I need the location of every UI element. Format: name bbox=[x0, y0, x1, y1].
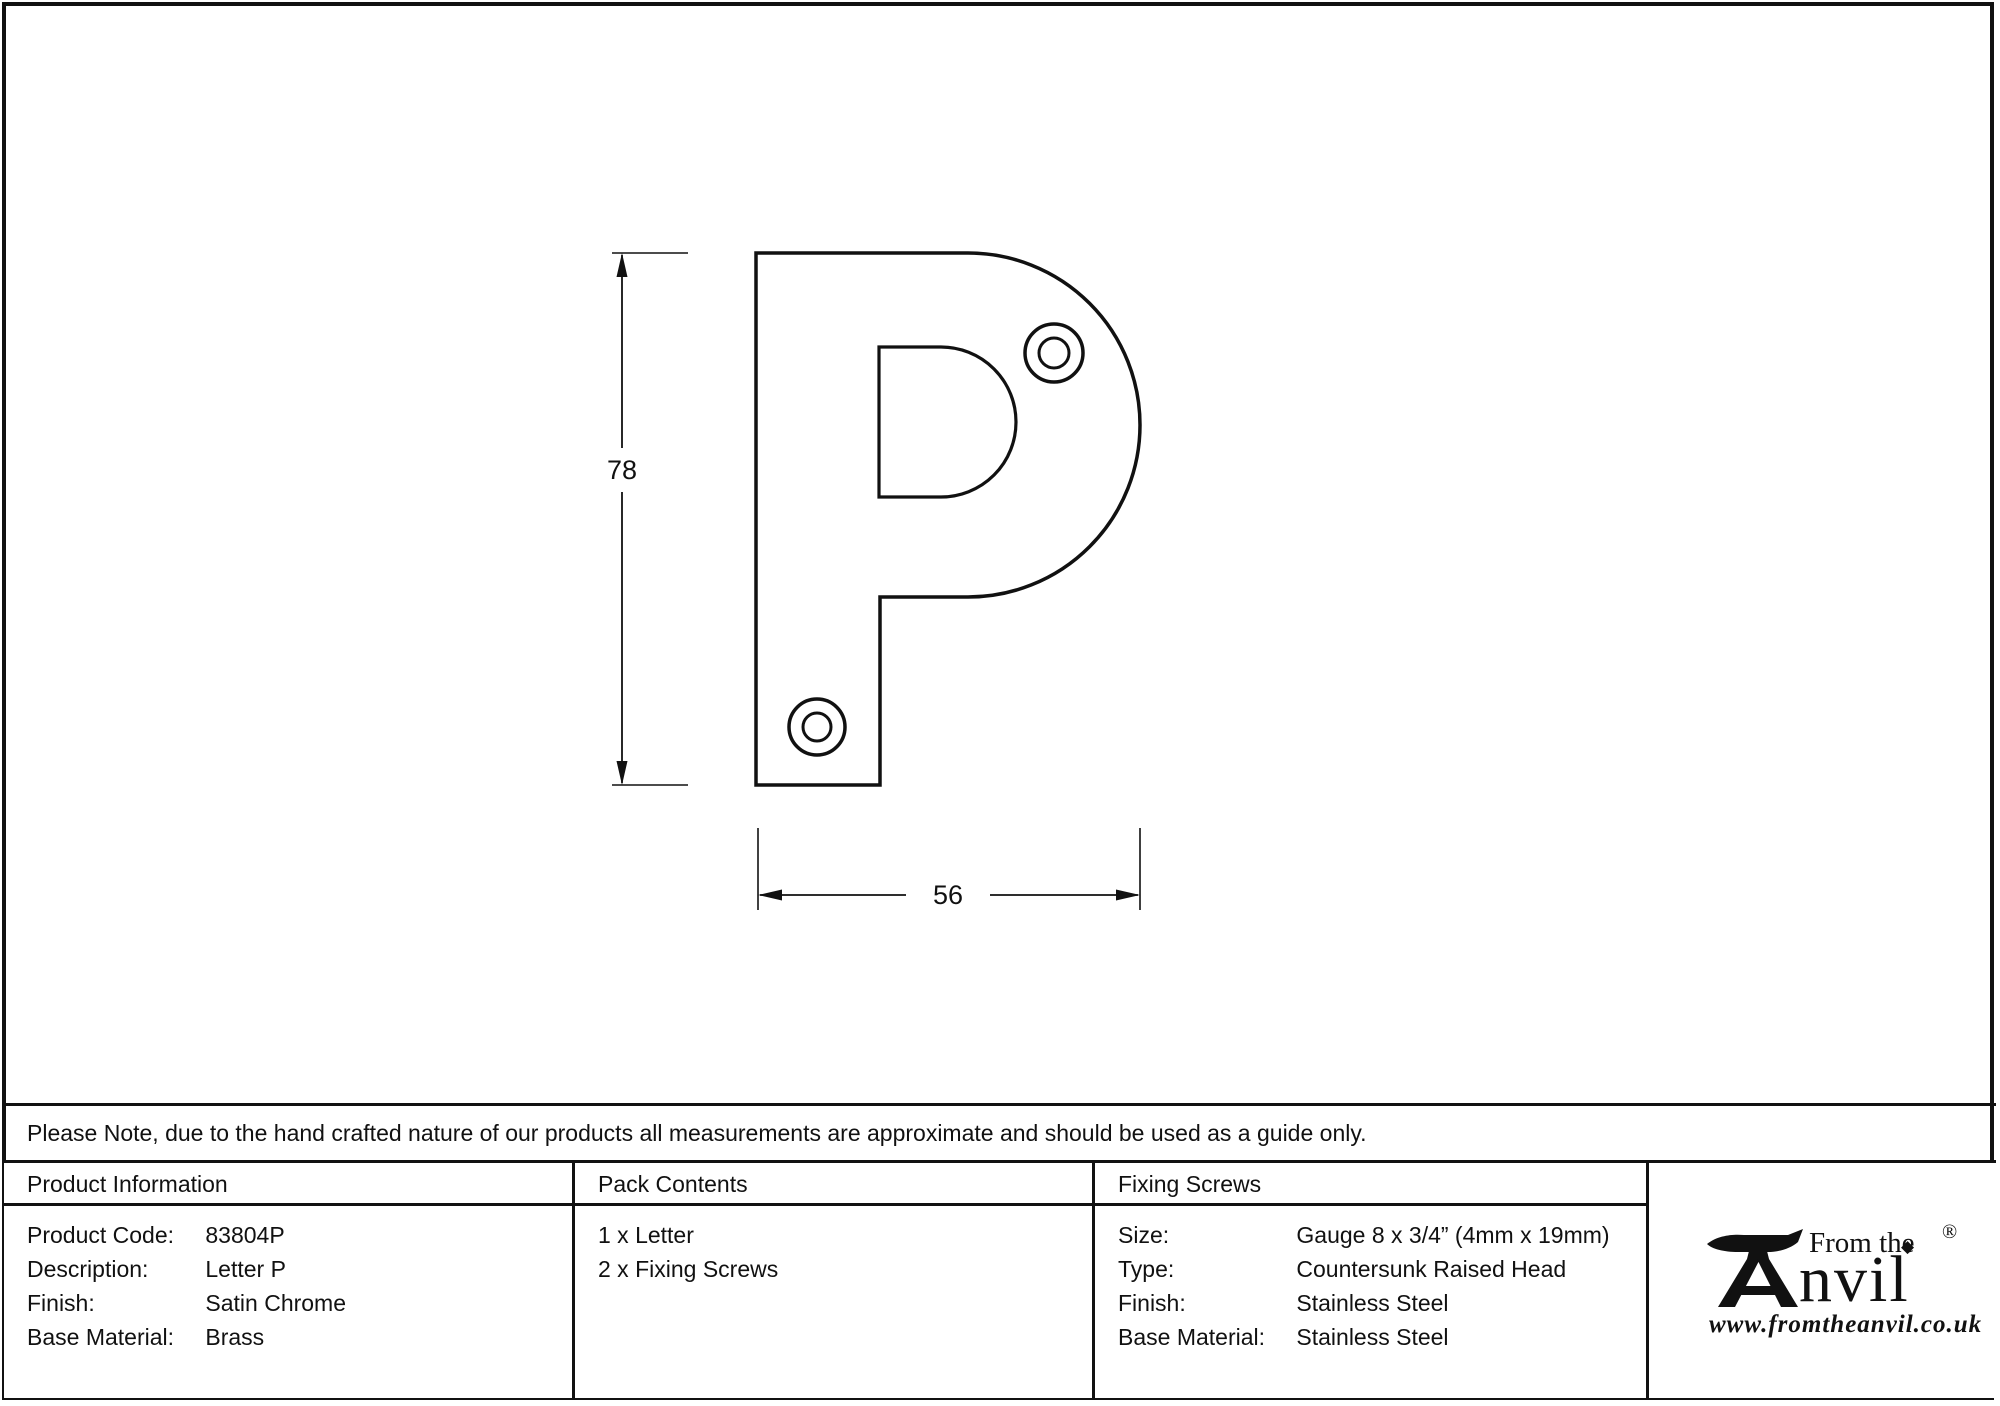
row-label: Finish: bbox=[27, 1286, 199, 1320]
pack-contents-header: Pack Contents bbox=[575, 1163, 1092, 1206]
row-value: Gauge 8 x 3/4” (4mm x 19mm) bbox=[1296, 1222, 1609, 1248]
row-value: Stainless Steel bbox=[1296, 1324, 1448, 1350]
row-value: Letter P bbox=[205, 1256, 286, 1282]
row-value: Brass bbox=[205, 1324, 264, 1350]
technical-drawing: 78 56 bbox=[0, 0, 2000, 1103]
note-text: Please Note, due to the hand crafted nat… bbox=[27, 1120, 1367, 1146]
table-row: Base Material: Stainless Steel bbox=[1118, 1320, 1646, 1354]
table-row: Size: Gauge 8 x 3/4” (4mm x 19mm) bbox=[1118, 1218, 1646, 1252]
list-item: 1 x Letter bbox=[598, 1218, 1092, 1252]
table-row: Type: Countersunk Raised Head bbox=[1118, 1252, 1646, 1286]
row-value: Stainless Steel bbox=[1296, 1290, 1448, 1316]
table-row: Finish: Stainless Steel bbox=[1118, 1286, 1646, 1320]
logo-website: www.fromtheanvil.co.uk bbox=[1709, 1311, 1982, 1339]
table-row: Product Code: 83804P bbox=[27, 1218, 572, 1252]
table-row: Base Material: Brass bbox=[27, 1320, 572, 1354]
pack-contents-column: Pack Contents 1 x Letter 2 x Fixing Scre… bbox=[572, 1163, 1092, 1398]
letter-p-counter bbox=[879, 347, 1016, 497]
width-dimension-label: 56 bbox=[933, 880, 963, 910]
row-value: Satin Chrome bbox=[205, 1290, 346, 1316]
table-row: Description: Letter P bbox=[27, 1252, 572, 1286]
row-label: Description: bbox=[27, 1252, 199, 1286]
row-label: Finish: bbox=[1118, 1286, 1290, 1320]
anvil-a-icon bbox=[1706, 1229, 1806, 1309]
fixing-screws-header: Fixing Screws bbox=[1095, 1163, 1646, 1206]
spec-sheet-page: 78 56 Please Note, due to the hand craft… bbox=[0, 0, 2000, 1406]
row-label: Base Material: bbox=[27, 1320, 199, 1354]
arrowhead-left-icon bbox=[758, 890, 782, 901]
row-label: Size: bbox=[1118, 1218, 1290, 1252]
row-label: Type: bbox=[1118, 1252, 1290, 1286]
logo-brand-text: nvil bbox=[1799, 1247, 1910, 1313]
table-row: Finish: Satin Chrome bbox=[27, 1286, 572, 1320]
row-value: 83804P bbox=[205, 1222, 284, 1248]
fixing-screws-body: Size: Gauge 8 x 3/4” (4mm x 19mm) Type: … bbox=[1095, 1206, 1646, 1354]
product-information-header: Product Information bbox=[4, 1163, 572, 1206]
fixing-screws-column: Fixing Screws Size: Gauge 8 x 3/4” (4mm … bbox=[1092, 1163, 1646, 1398]
screw-hole-bottom-outer bbox=[789, 699, 845, 755]
note-row: Please Note, due to the hand crafted nat… bbox=[4, 1103, 1996, 1163]
screw-hole-bottom-inner bbox=[803, 713, 831, 741]
arrowhead-right-icon bbox=[1116, 890, 1140, 901]
row-label: Product Code: bbox=[27, 1218, 199, 1252]
brand-logo-cell: From the ◆ nvil ® www.fromtheanvil.co.uk bbox=[1646, 1163, 1996, 1398]
height-dimension-label: 78 bbox=[607, 455, 637, 485]
row-value: Countersunk Raised Head bbox=[1296, 1256, 1566, 1282]
pack-contents-body: 1 x Letter 2 x Fixing Screws bbox=[575, 1206, 1092, 1286]
screw-hole-top-inner bbox=[1039, 338, 1069, 368]
product-information-column: Product Information Product Code: 83804P… bbox=[4, 1163, 572, 1398]
row-label: Base Material: bbox=[1118, 1320, 1290, 1354]
letter-p-outline bbox=[756, 253, 1140, 785]
list-item: 2 x Fixing Screws bbox=[598, 1252, 1092, 1286]
arrowhead-down-icon bbox=[617, 761, 628, 785]
screw-hole-top-outer bbox=[1025, 324, 1083, 382]
registered-trademark-icon: ® bbox=[1942, 1221, 1957, 1244]
arrowhead-up-icon bbox=[617, 253, 628, 277]
product-information-body: Product Code: 83804P Description: Letter… bbox=[4, 1206, 572, 1354]
